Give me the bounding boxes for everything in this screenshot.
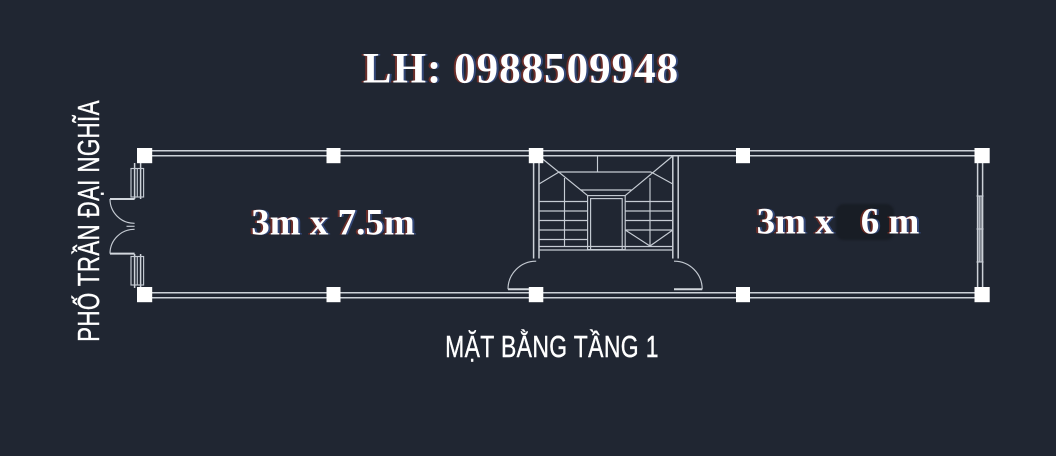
window-left-bottom	[131, 257, 144, 286]
stair-top-winders	[539, 156, 673, 196]
stair-left-flight	[539, 178, 588, 247]
room-label-right: 3m x6 m	[757, 201, 920, 244]
staircase	[539, 156, 673, 250]
window-left-top	[131, 169, 144, 198]
landing-door-right	[674, 261, 702, 289]
right-wall	[977, 163, 984, 287]
top-wall	[137, 151, 988, 156]
stairwell-right-wall	[673, 156, 678, 259]
floor-plan-page: LH: 0988509948 PHỐ TRẦN ĐẠI NGHĨA 3m x 7…	[0, 0, 1056, 456]
plan-caption: MẶT BẰNG TẦNG 1	[445, 329, 659, 365]
street-name-label: PHỐ TRẦN ĐẠI NGHĨA	[71, 100, 107, 342]
room-label-left: 3m x 7.5m	[251, 202, 414, 245]
room-label-right-suffix: 6 m	[861, 201, 920, 244]
left-wall	[110, 163, 144, 288]
page-title: LH: 0988509948	[363, 45, 679, 94]
stair-void	[588, 196, 626, 250]
stair-right-flight	[625, 178, 673, 247]
stairwell-left-wall	[534, 156, 539, 259]
landing-door-left	[508, 261, 536, 289]
bottom-wall	[137, 293, 988, 298]
entrance-double-door	[110, 199, 135, 254]
room-label-right-prefix: 3m x	[757, 201, 834, 244]
